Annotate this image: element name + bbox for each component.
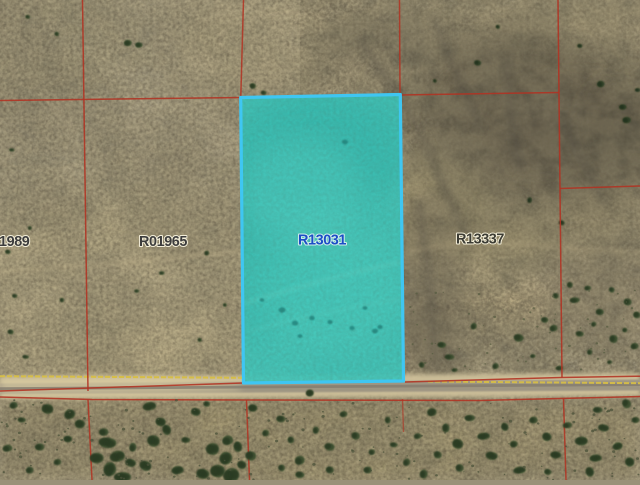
svg-text:R13031: R13031 xyxy=(298,233,346,249)
svg-text:1989: 1989 xyxy=(0,234,30,250)
svg-text:R01965: R01965 xyxy=(139,234,187,250)
svg-text:R13337: R13337 xyxy=(456,232,504,248)
